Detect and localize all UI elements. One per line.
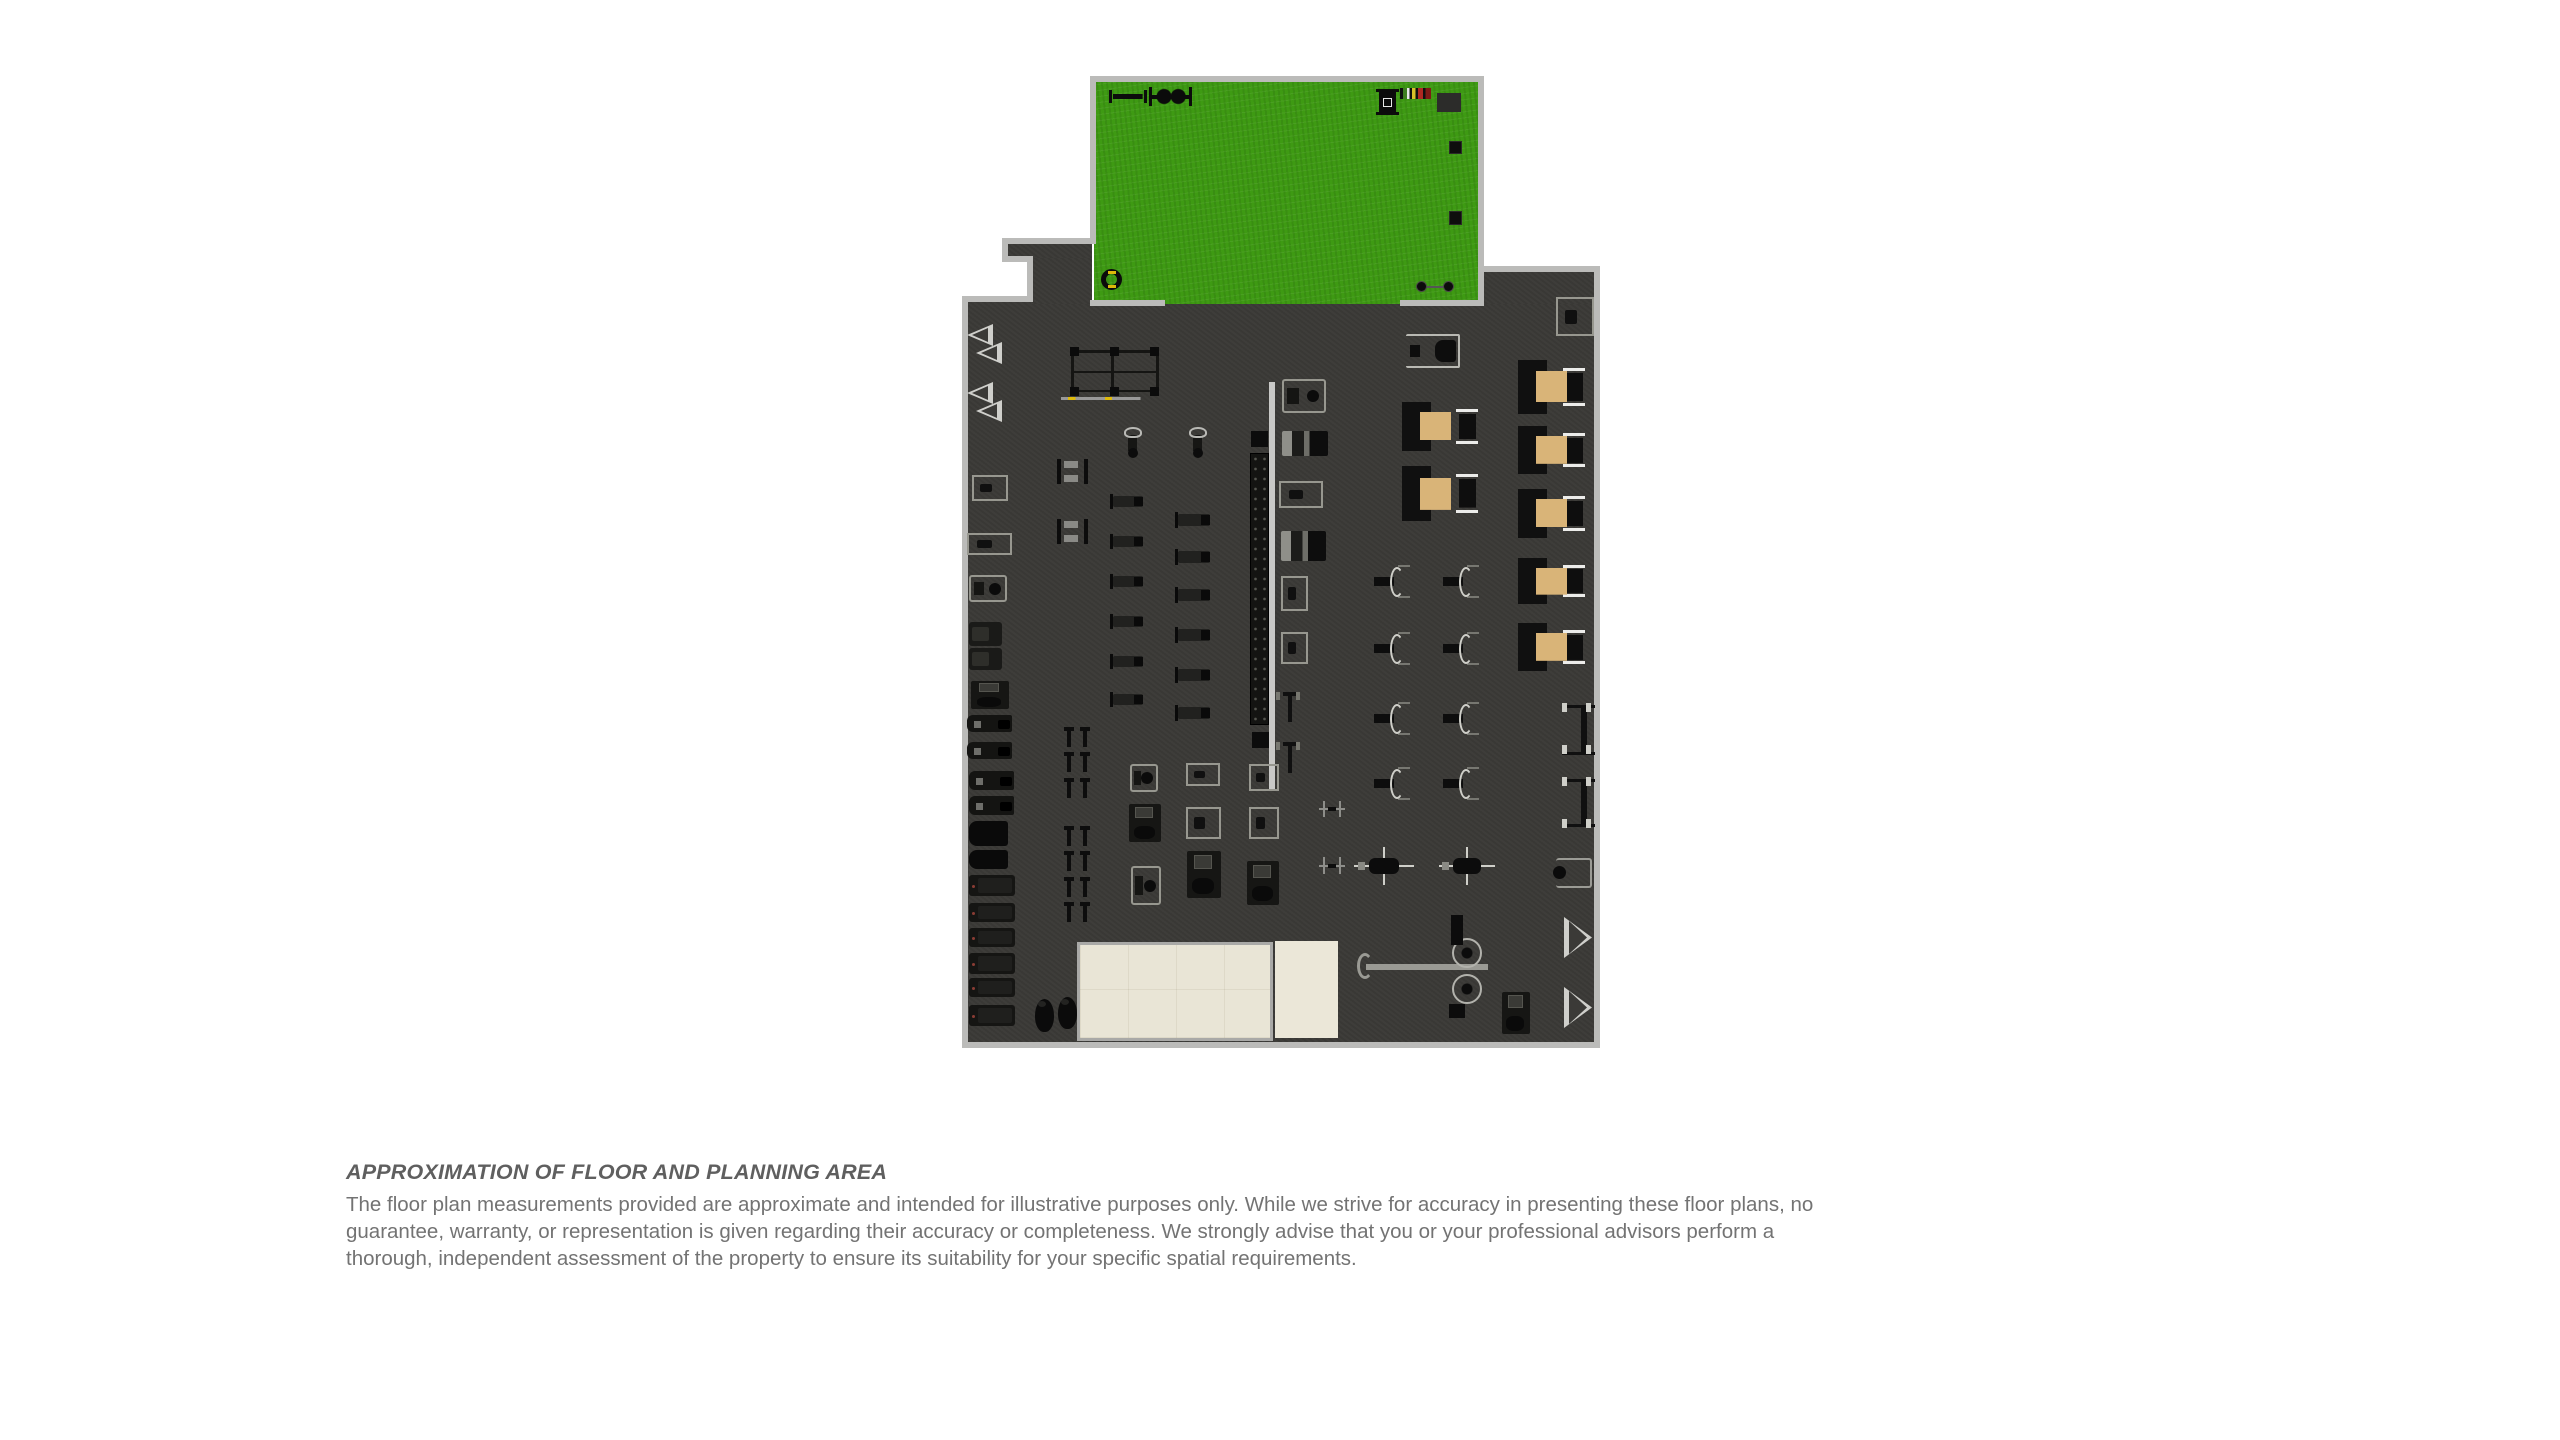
weight-machine-icon — [1187, 851, 1221, 898]
adjustable-bench-icon — [972, 475, 1008, 501]
disclaimer-title: APPROXIMATION OF FLOOR AND PLANNING AREA — [346, 1160, 1946, 1185]
plate-loaded-machine-icon — [1374, 627, 1417, 670]
treadmill-icon — [969, 978, 1015, 997]
platform-machine-icon — [1402, 402, 1478, 451]
plate-loaded-machine-icon — [1374, 560, 1417, 603]
bench-pair-icon — [1062, 851, 1093, 871]
weight-machine-icon — [1186, 807, 1221, 839]
flat-bench-icon — [1178, 589, 1210, 601]
squat-rack-icon — [1071, 350, 1159, 404]
platform-machine-icon — [1518, 623, 1585, 671]
wall — [1090, 300, 1165, 306]
plate-loaded-machine-icon — [1374, 762, 1417, 805]
flat-bench-icon — [1178, 629, 1210, 641]
wall — [1482, 266, 1600, 272]
weight-machine-icon — [1129, 804, 1161, 842]
flat-bench-icon — [1113, 616, 1143, 627]
wall — [1090, 76, 1096, 244]
flat-bench-icon — [1113, 536, 1143, 547]
wall — [1594, 266, 1600, 1048]
sled-rack-icon — [1379, 89, 1396, 115]
flat-bench-icon — [1113, 496, 1143, 507]
storage-box-icon — [969, 850, 1008, 869]
rack-end-icon — [1251, 431, 1268, 447]
platform-machine-icon — [1402, 466, 1478, 521]
corridor-floor — [1031, 258, 1092, 304]
weight-machine-icon — [1186, 763, 1220, 786]
wall — [962, 296, 1033, 302]
treadmill-icon — [969, 953, 1015, 974]
power-sled-icon — [1149, 86, 1192, 107]
half-rack-icon — [1562, 779, 1595, 827]
ball-machine-icon — [1556, 858, 1592, 888]
rowing-machine-icon — [969, 771, 1014, 790]
platform-machine-icon — [1518, 489, 1585, 538]
wall — [962, 296, 968, 1048]
press-machine-icon — [1354, 847, 1414, 885]
bench-pair-icon — [1062, 752, 1093, 772]
weight-stack-machine-icon — [1282, 431, 1328, 456]
platform-machine-icon — [1518, 426, 1585, 474]
wall — [962, 1042, 1600, 1048]
crossover-base-icon — [1449, 1004, 1465, 1018]
turf-area — [1094, 80, 1480, 304]
flat-bench-icon — [1178, 707, 1210, 719]
seated-machine-icon — [1130, 764, 1158, 792]
wall — [1002, 238, 1096, 244]
flat-bench-icon — [1113, 576, 1143, 587]
seated-machine-icon — [969, 575, 1007, 602]
platform-machine-icon — [1518, 558, 1585, 604]
rowing-machine-icon — [967, 742, 1012, 759]
bench-pair-icon — [1062, 826, 1093, 846]
weight-machine-icon — [967, 533, 1012, 555]
seated-machine-icon — [1131, 866, 1161, 905]
weight-machine-icon — [1281, 576, 1308, 611]
pad-bench-icon — [1406, 334, 1460, 368]
bench-pair-icon — [1062, 902, 1093, 922]
pulley-machine-icon — [1319, 801, 1345, 817]
plate-loaded-machine-icon — [1443, 560, 1486, 603]
bench-pair-icon — [1062, 877, 1093, 897]
punching-bag-icon — [1035, 999, 1054, 1032]
pulley-machine-icon — [1319, 857, 1345, 874]
weight-machine-icon — [971, 681, 1009, 709]
plyo-box-icon — [1449, 211, 1462, 225]
wall — [1090, 76, 1484, 82]
flat-bench-icon — [1178, 514, 1210, 526]
tire-icon — [1101, 269, 1122, 290]
cable-station-icon — [1276, 742, 1304, 773]
corner-machine-icon — [1556, 297, 1594, 336]
treadmill-icon — [969, 928, 1015, 947]
treadmill-icon — [969, 1005, 1015, 1026]
flat-bench-icon — [1113, 656, 1143, 667]
dumbbell-rack-icon — [1250, 453, 1269, 725]
push-sled-icon — [1109, 90, 1147, 103]
barbell-icon — [1416, 281, 1454, 292]
small-machine-icon — [1502, 992, 1530, 1034]
bench-pair-icon — [1062, 778, 1093, 798]
weight-machine-icon — [1249, 807, 1279, 839]
bumper-plate-rack-icon — [1400, 88, 1431, 99]
cable-crossover-pulleys-icon — [1444, 936, 1490, 1006]
weight-machine-icon — [1279, 481, 1323, 508]
weight-machine-icon — [1247, 861, 1279, 905]
treadmill-icon — [969, 903, 1015, 922]
rack-end-icon — [1252, 732, 1269, 748]
flat-bench-icon — [1178, 551, 1210, 563]
studio-area — [1275, 941, 1338, 1038]
treadmill-icon — [969, 875, 1015, 896]
crossover-post-icon — [1451, 915, 1463, 945]
flat-bench-icon — [1113, 694, 1143, 705]
disclaimer-body: The floor plan measurements provided are… — [346, 1191, 1946, 1272]
plate-loaded-machine-icon — [1443, 697, 1486, 740]
plate-loaded-machine-icon — [1443, 627, 1486, 670]
weight-machine-icon — [1249, 764, 1279, 791]
punching-bag-icon — [1058, 997, 1077, 1029]
weight-stack-machine-icon — [1281, 531, 1326, 561]
gym-mat-icon — [1437, 93, 1461, 112]
lat-pulldown-icon — [1282, 379, 1326, 413]
weight-machine-icon — [1281, 632, 1308, 664]
cardio-machine-icon — [969, 622, 1002, 646]
plate-loaded-machine-icon — [1374, 697, 1417, 740]
platform-machine-icon — [1518, 360, 1585, 414]
mirror-wall — [1269, 382, 1275, 790]
rowing-machine-icon — [969, 796, 1014, 815]
storage-box-icon — [969, 821, 1008, 846]
press-machine-icon — [1439, 847, 1495, 885]
bench-station-icon — [1057, 519, 1088, 544]
disclaimer-block: APPROXIMATION OF FLOOR AND PLANNING AREA… — [346, 1160, 1946, 1272]
cardio-machine-icon — [969, 648, 1002, 670]
wall — [1400, 300, 1484, 306]
bench-station-icon — [1057, 459, 1088, 484]
half-rack-icon — [1562, 705, 1595, 755]
spin-bike-icon — [1117, 427, 1148, 458]
gym-floor — [966, 300, 1596, 1044]
flat-bench-icon — [1178, 669, 1210, 681]
plyo-box-icon — [1449, 141, 1462, 154]
mat-room — [1077, 942, 1273, 1041]
rowing-machine-icon — [967, 715, 1012, 732]
cable-station-icon — [1276, 692, 1304, 722]
plate-loaded-machine-icon — [1443, 762, 1486, 805]
bench-pair-icon — [1062, 727, 1093, 747]
spin-bike-icon — [1182, 427, 1213, 458]
